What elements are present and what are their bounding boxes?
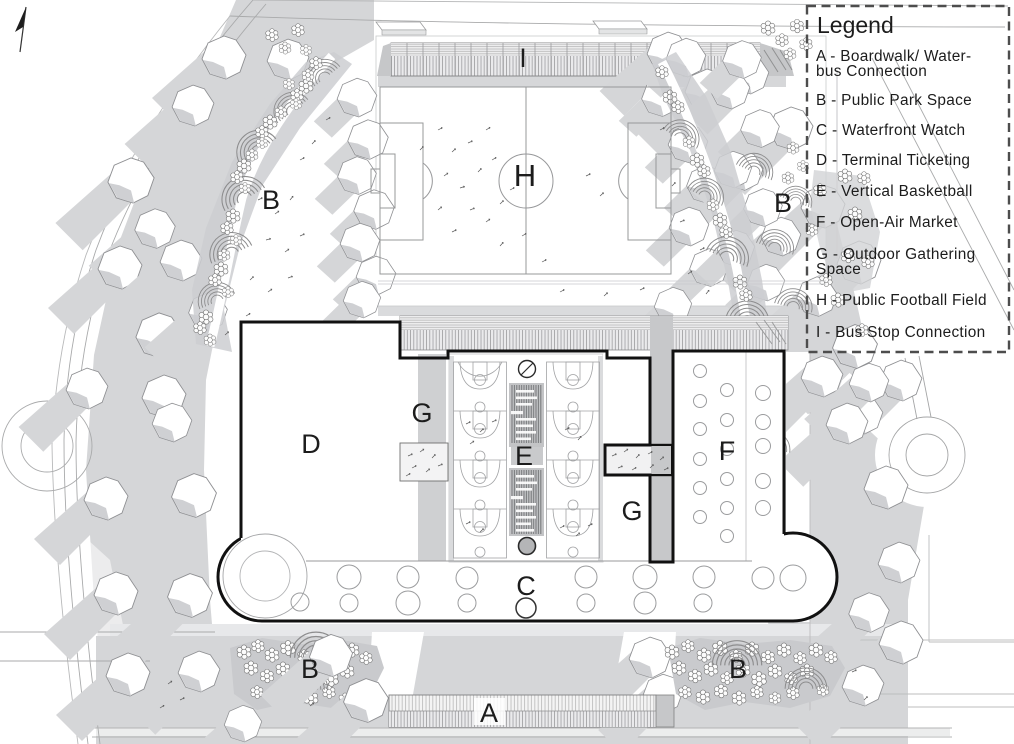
svg-text:E - Vertical Basketball: E - Vertical Basketball	[816, 183, 973, 200]
svg-text:B: B	[262, 185, 280, 215]
svg-text:Space: Space	[816, 261, 861, 278]
svg-text:E: E	[515, 441, 533, 471]
svg-text:bus Connection: bus Connection	[816, 63, 927, 80]
svg-text:H: H	[514, 158, 536, 193]
svg-text:C: C	[516, 571, 536, 601]
svg-text:B: B	[774, 188, 792, 218]
svg-text:B: B	[301, 654, 319, 684]
svg-text:F: F	[719, 436, 736, 466]
svg-text:A: A	[480, 698, 498, 728]
svg-text:F - Open-Air Market: F - Open-Air Market	[816, 214, 958, 231]
svg-text:D: D	[301, 429, 321, 459]
svg-text:B: B	[729, 654, 747, 684]
svg-text:C - Waterfront Watch: C - Waterfront Watch	[816, 122, 965, 139]
svg-text:G: G	[621, 496, 642, 526]
svg-text:I - Bus Stop Connection: I - Bus Stop Connection	[816, 324, 985, 341]
svg-text:G: G	[411, 398, 432, 428]
svg-text:Legend: Legend	[817, 12, 894, 38]
svg-text:I: I	[519, 43, 527, 73]
svg-text:H - Public Football Field: H - Public Football Field	[816, 292, 987, 309]
svg-text:B - Public Park Space: B - Public Park Space	[816, 92, 972, 109]
svg-text:D - Terminal Ticketing: D - Terminal Ticketing	[816, 152, 970, 169]
